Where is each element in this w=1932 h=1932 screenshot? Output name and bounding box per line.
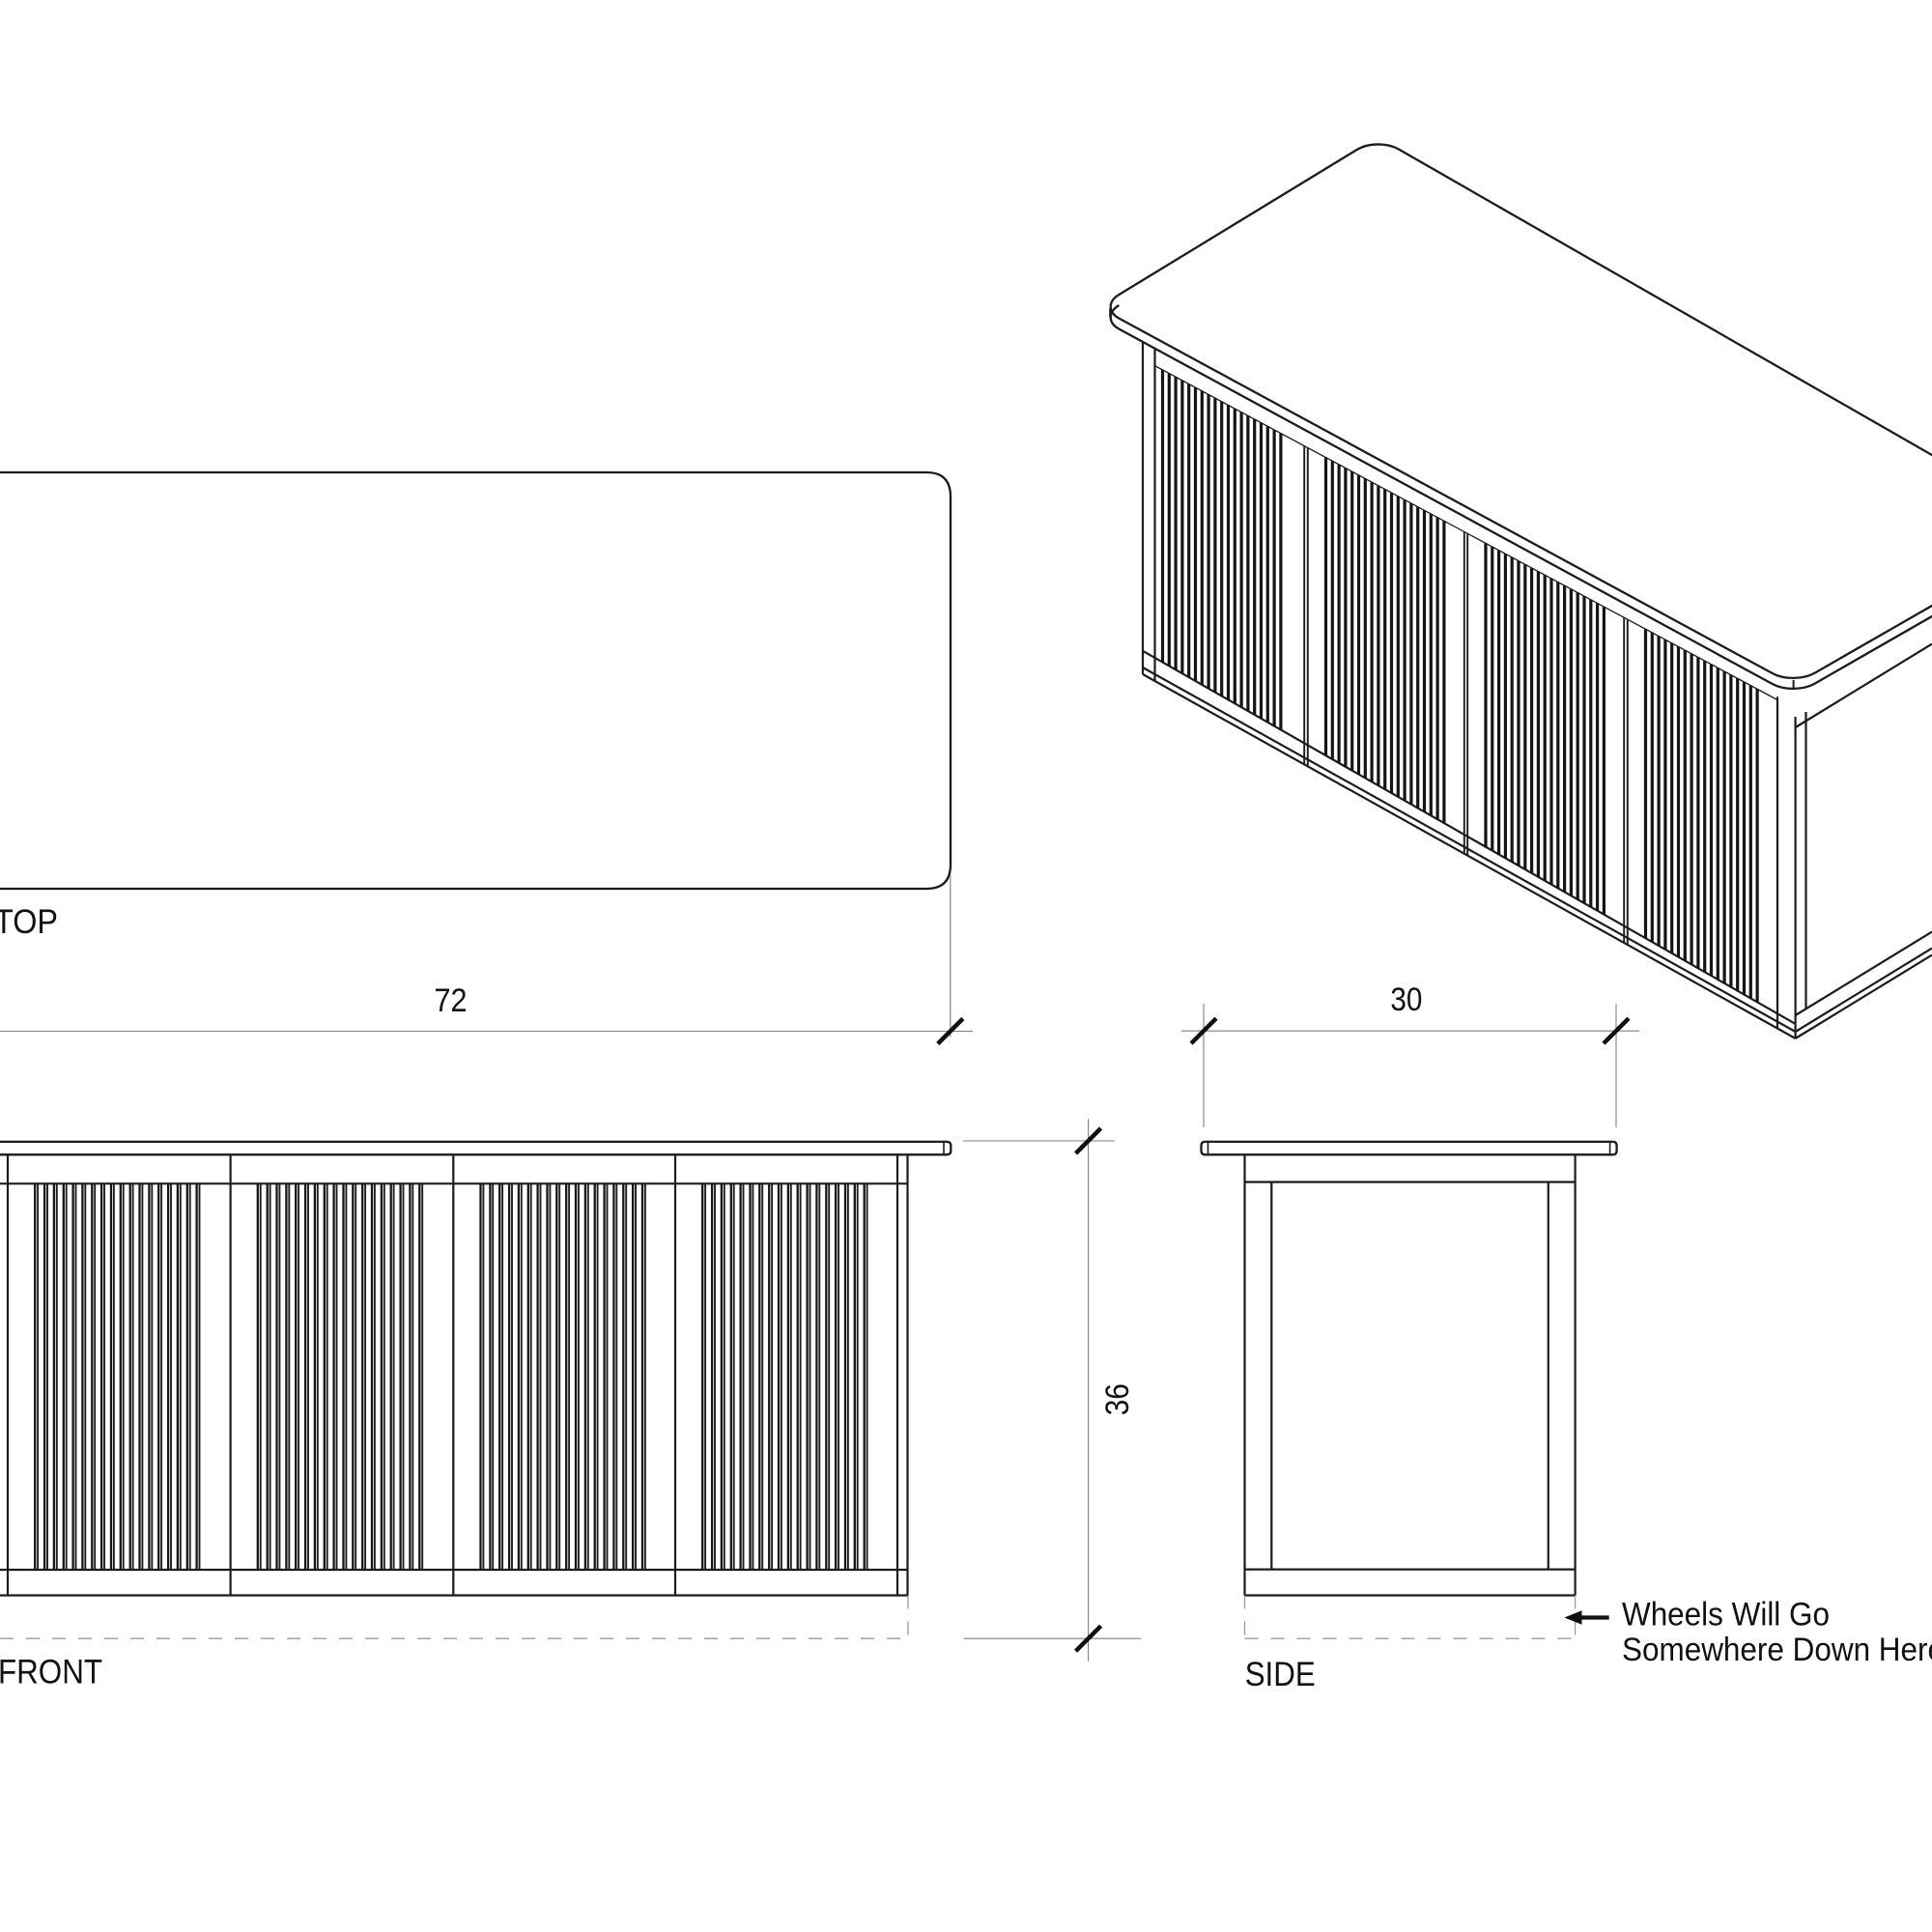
svg-text:Wheels Will Go: Wheels Will Go — [1622, 1596, 1830, 1633]
svg-text:SIDE: SIDE — [1245, 1656, 1316, 1693]
svg-text:30: 30 — [1390, 981, 1422, 1018]
svg-text:36: 36 — [1099, 1383, 1136, 1415]
svg-text:72: 72 — [435, 982, 468, 1019]
svg-text:TOP: TOP — [0, 903, 58, 941]
svg-text:FRONT: FRONT — [0, 1653, 102, 1690]
svg-text:Somewhere Down Here: Somewhere Down Here — [1622, 1632, 1932, 1668]
